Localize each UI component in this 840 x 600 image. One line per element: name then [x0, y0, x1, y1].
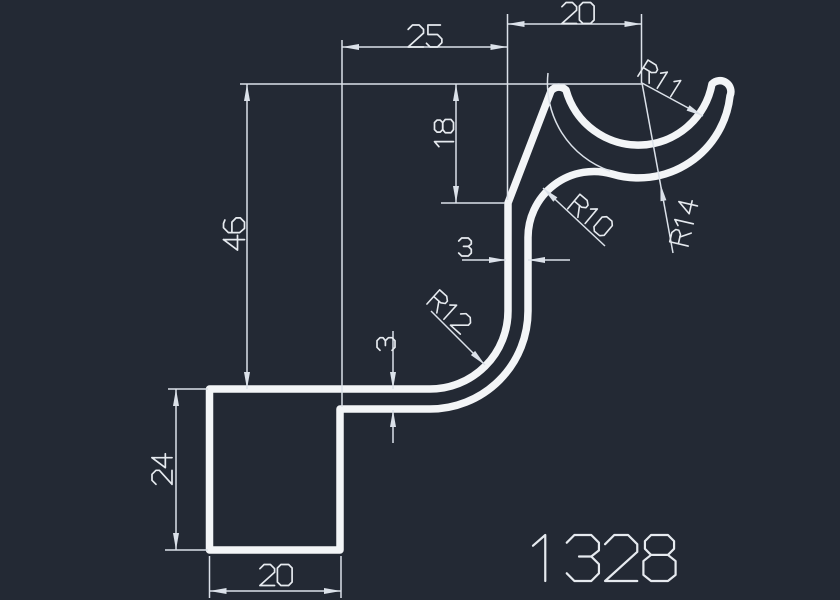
dim-arrowhead [173, 389, 179, 406]
dim-arrowhead [453, 84, 459, 101]
dim-arrowhead [244, 84, 250, 101]
dim-arrowhead [210, 588, 227, 594]
stroke-glyph [408, 25, 423, 47]
radius-label-lower-bend [427, 290, 473, 334]
radius-arrowhead [660, 184, 666, 201]
radius-label-cup-inner [638, 60, 681, 97]
dim-label-base-height [152, 454, 172, 485]
part-number [533, 535, 676, 581]
stroke-glyph [443, 119, 454, 132]
stroke-glyph [567, 556, 599, 581]
stroke-glyph [645, 535, 674, 555]
stroke-glyph [567, 535, 599, 556]
stroke-glyph [459, 246, 472, 256]
dim-arrowhead [342, 44, 359, 50]
stroke-glyph [677, 198, 692, 214]
stroke-glyph [666, 78, 680, 97]
dim-label-hook-depth [435, 119, 454, 146]
radius-label-cup-outer [670, 198, 699, 246]
stroke-glyph [674, 220, 694, 229]
dim-arrowhead [489, 257, 506, 263]
stroke-glyph [592, 215, 614, 238]
dim-label-hook-offset [408, 25, 442, 47]
dim-label-top-width [562, 3, 594, 24]
stroke-glyph [581, 206, 597, 224]
stroke-glyph [426, 25, 441, 47]
dim-arrowhead [453, 186, 459, 203]
dim-arrowhead [491, 44, 508, 50]
drawing-sheet [0, 0, 840, 600]
radius-label-neck [568, 194, 615, 237]
radius-leader [642, 83, 673, 253]
dim-arrowhead [173, 533, 179, 550]
cad-canvas[interactable] [0, 0, 840, 600]
dim-arrowhead [625, 21, 642, 27]
stroke-glyph [435, 120, 443, 132]
dim-label-thickness-upper [459, 238, 472, 256]
stroke-glyph [377, 338, 385, 351]
dim-arrowhead [508, 21, 525, 27]
dimension-lines [165, 14, 703, 598]
dim-arrowhead [324, 588, 341, 594]
stroke-glyph [643, 555, 675, 581]
stroke-glyph [459, 238, 472, 246]
stroke-glyph [152, 454, 165, 468]
dim-label-base-width [260, 565, 292, 586]
stroke-glyph [152, 470, 172, 484]
radius-arrowhead [471, 351, 485, 365]
stroke-glyph [435, 142, 454, 147]
stroke-glyph [224, 218, 245, 233]
stroke-glyph [224, 235, 238, 250]
stroke-glyph [680, 231, 691, 239]
stroke-glyph [277, 565, 292, 586]
stroke-glyph [440, 302, 456, 320]
profile-path [210, 81, 731, 550]
stroke-glyph [562, 3, 577, 24]
dim-label-overall-height [224, 218, 245, 250]
stroke-glyph [450, 311, 473, 334]
stroke-glyph [579, 3, 594, 24]
stroke-glyph [605, 535, 637, 581]
dimension-labels [152, 3, 698, 586]
stroke-glyph [260, 565, 275, 586]
stroke-glyph [533, 535, 545, 581]
